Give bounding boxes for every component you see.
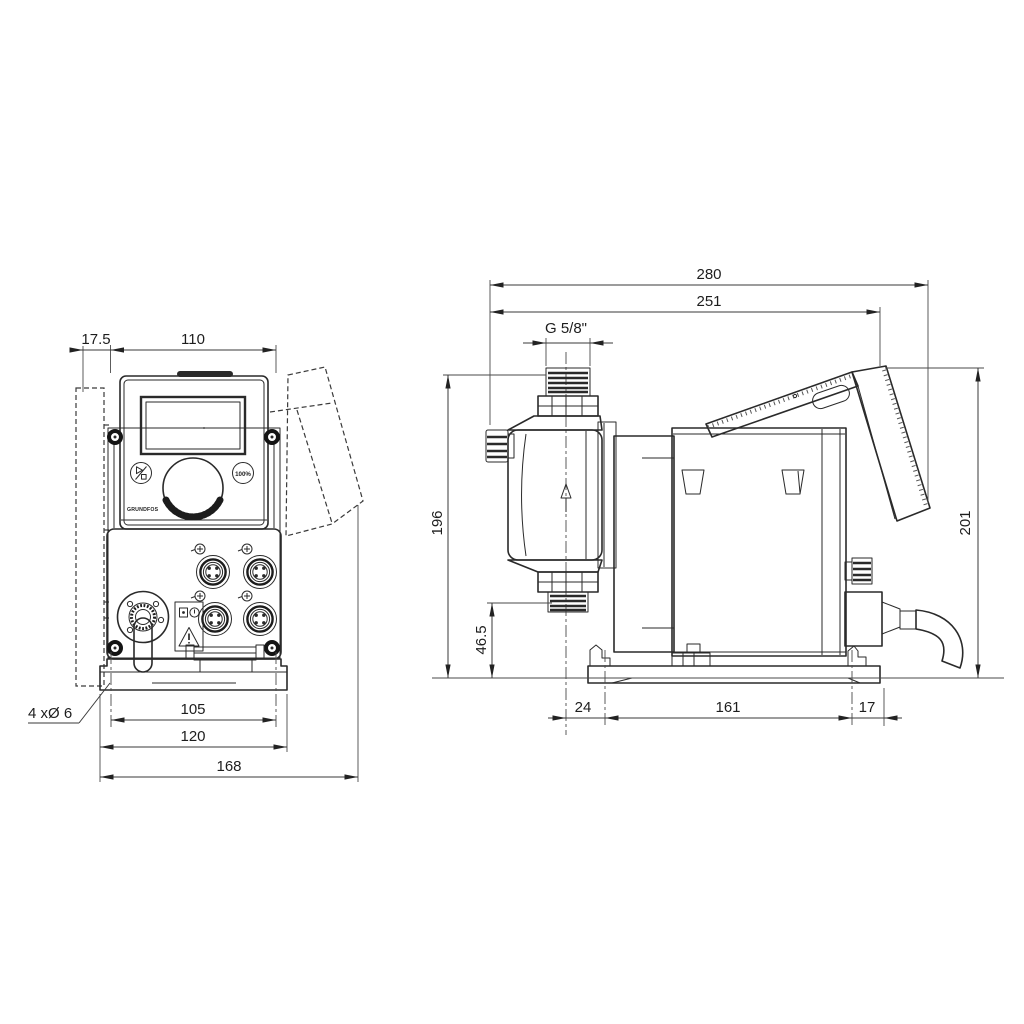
click-tab <box>782 470 804 494</box>
dosing-head <box>486 416 602 572</box>
m12-connector-icon <box>244 603 277 636</box>
dim-panel-width: 110 <box>181 331 205 348</box>
suction-connection <box>538 572 598 612</box>
dim-foot-rear: 17 <box>859 699 876 716</box>
m12-connectors <box>191 544 277 636</box>
dim-plate-width: 120 <box>180 728 205 745</box>
terminal-cover <box>706 366 930 521</box>
technical-drawing-page: 100% GRUNDFOS <box>0 0 1024 1024</box>
thread-dimension: G 5/8" <box>523 320 613 366</box>
start-stop-icon <box>136 467 147 480</box>
dim-height-connection: 196 <box>429 510 446 535</box>
warning-triangle-icon <box>179 628 199 647</box>
brand-logo: GRUNDFOS <box>127 507 159 513</box>
connection-body <box>107 431 281 672</box>
front-dimensions: 17.5 110 105 120 168 4 xØ 6 <box>28 331 358 782</box>
mains-cable <box>916 610 963 668</box>
warning-label <box>175 602 203 651</box>
display <box>141 397 245 454</box>
pump-housing <box>598 422 846 656</box>
front-view: 100% GRUNDFOS <box>28 331 363 782</box>
rear-connection <box>845 558 963 668</box>
discharge-connection <box>538 368 598 416</box>
click-tab <box>682 470 704 494</box>
side-cover-phantom <box>270 367 363 536</box>
dim-foot-front: 24 <box>575 699 592 716</box>
cable-gland-cone <box>882 602 900 634</box>
read-manual-icon <box>180 608 200 617</box>
dim-housing-length: 251 <box>696 293 721 310</box>
dim-offset: 17.5 <box>81 331 110 348</box>
hundred-percent-label: 100% <box>235 471 251 478</box>
dim-hole-spacing: 105 <box>180 701 205 718</box>
side-view: 280 251 G 5/8" 196 46.5 201 <box>429 266 1004 735</box>
hundred-percent-button: 100% <box>233 463 254 484</box>
click-wheel <box>163 458 223 518</box>
wall-bracket-hidden <box>76 388 109 686</box>
dim-thread: G 5/8" <box>545 320 587 337</box>
top-tab <box>177 371 233 377</box>
base-plate-side <box>588 644 880 683</box>
start-stop-button <box>131 463 152 484</box>
holes-note: 4 xØ 6 <box>28 705 72 722</box>
cable-gland <box>118 592 169 673</box>
dim-suction-height: 46.5 <box>473 625 490 654</box>
dim-total-length: 280 <box>696 266 721 283</box>
holes-callout: 4 xØ 6 <box>28 683 110 723</box>
m12-connector-icon <box>244 556 277 589</box>
dim-total-height: 201 <box>957 510 974 535</box>
base-plate-front <box>100 659 287 690</box>
dim-total-width: 168 <box>216 758 241 775</box>
dim-foot-hole-spacing: 161 <box>715 699 740 716</box>
m12-connector-icon <box>197 556 230 589</box>
control-panel: 100% GRUNDFOS <box>120 371 268 529</box>
side-dimensions: 280 251 G 5/8" 196 46.5 201 <box>429 266 984 726</box>
dimensional-drawing: 100% GRUNDFOS <box>0 0 1024 1024</box>
